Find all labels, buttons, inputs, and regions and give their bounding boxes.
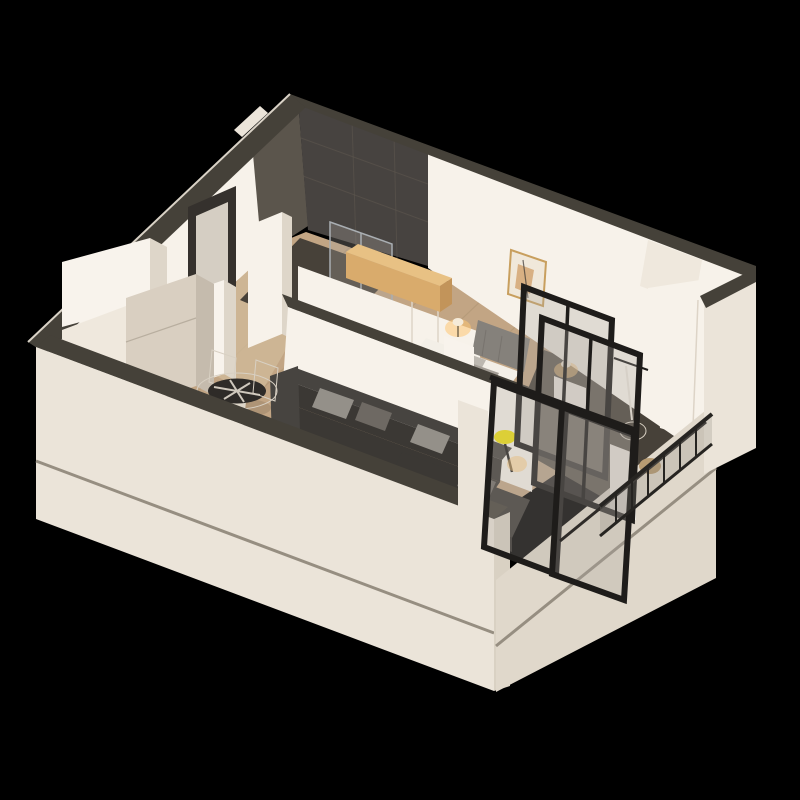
shoe-cabinet-side [224,280,236,381]
table-lamp [453,318,464,326]
apartment-3d-render [0,0,800,800]
render-canvas [0,0,800,800]
bathroom-door-jamb [248,212,282,348]
